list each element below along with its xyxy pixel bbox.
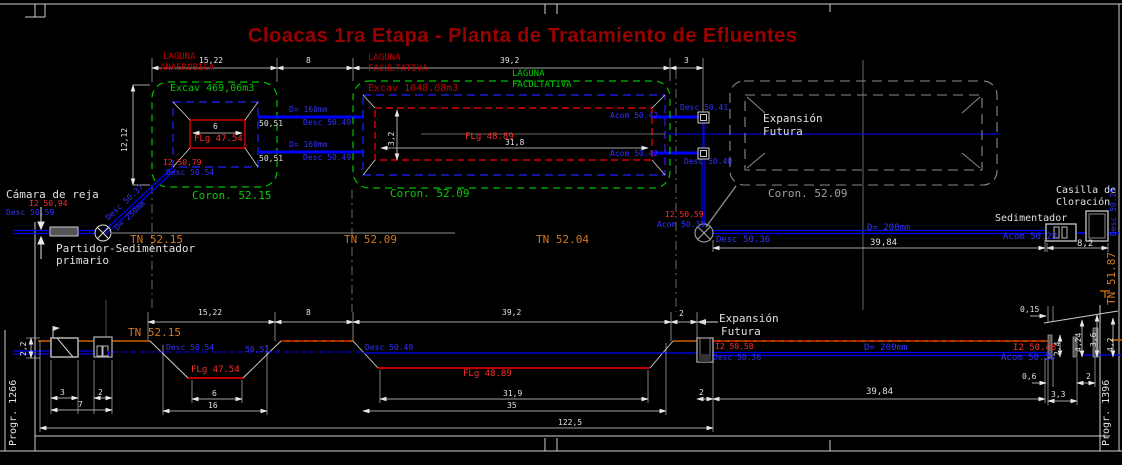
flg-anaerobica: FLg 47.54 (194, 135, 243, 144)
casilla-label-1: Casilla de (1056, 186, 1116, 196)
dim-7-left: 7 (78, 401, 83, 409)
dim-prof-8: 8 (306, 309, 311, 317)
coron-facultativa: Coron. 52.09 (390, 188, 469, 199)
casilla-desc: Desc 50.25 (1110, 188, 1118, 236)
i2-anaerobica: I2 50,79 (163, 159, 202, 167)
i2-5058-profile: I2 50.58 (715, 343, 754, 351)
reja-structure (50, 227, 78, 236)
expansion-profile-1: Expansión (719, 313, 779, 324)
tn-5187: TN 51.87 (1106, 252, 1117, 305)
laguna-facultativa-label-3: LAGUNA (512, 70, 545, 79)
progresiva-1396: Progr. 1396 (1102, 380, 1112, 446)
expansion-label-1: Expansión (763, 113, 823, 124)
laguna-facultativa-label-4: FACULTATIVA (512, 81, 572, 90)
pipe-top-diameter: D= 160mm (289, 106, 328, 114)
dim-plan-6: 6 (213, 123, 218, 131)
dim-2-manhole: 2 (699, 389, 704, 397)
desc-outlet-bottom: Desc 50.40 (684, 158, 732, 166)
acom-facultativa-top: Acom 50.42 (610, 112, 658, 120)
dim-prof-6: 6 (212, 390, 217, 398)
pipe-d200: D= 200mm (867, 224, 910, 233)
tn-5209: TN 52.09 (344, 234, 397, 245)
laguna-facultativa-label-2: FACULTATIVA (368, 65, 428, 74)
drawing-title: Cloacas 1ra Etapa - Planta de Tratamient… (248, 26, 797, 46)
pipe-bottom-desc: Desc 50.49 (303, 154, 351, 162)
dim-plan-1212: 12,12 (121, 128, 129, 152)
pipe-top-desc: Desc 50.49 (303, 119, 351, 127)
casilla-label-2: Cloración (1056, 198, 1110, 208)
excav-anaerobica: Excav 469,06m3 (170, 84, 254, 94)
camara-desc: Desc 50,59 (6, 209, 54, 217)
dim-prof-392: 39,2 (502, 309, 521, 317)
flg-anaerobica-profile: FLg 47.54 (191, 366, 240, 375)
dim-prof-319: 31,9 (503, 390, 522, 398)
profile-dimensions-top (148, 306, 1053, 341)
acom-5028-profile: Acom 50.28 (1001, 354, 1055, 363)
dim-prof-35: 35 (507, 402, 517, 410)
dim-3984-plan: 39,84 (870, 239, 897, 248)
manhole-acom: Acom 50.39 (657, 221, 705, 229)
dim-plan-3: 3 (684, 57, 689, 65)
desc-5049-profile: Desc 50.49 (365, 344, 413, 352)
progresiva-1266: Progr. 1266 (9, 380, 19, 446)
pipe-bottom-level: 50,51 (259, 155, 283, 163)
sedimentador-acom: Acom 50.28 (1003, 233, 1057, 242)
laguna-anaerobica-label-2: ANAEROBICA (160, 64, 214, 73)
tn-5204: TN 52.04 (536, 234, 589, 245)
expansion-label-2: Futura (763, 126, 803, 137)
dim-prof-015: 0,15 (1020, 306, 1039, 314)
acom-facultativa-bottom: Acom 50.42 (610, 150, 658, 158)
pipe-bottom-diameter: D= 160mm (289, 141, 328, 149)
casilla-structure (1086, 211, 1108, 241)
dim-82: 8,2 (1077, 240, 1093, 249)
cad-drawing-canvas[interactable]: Cloacas 1ra Etapa - Planta de Tratamient… (0, 0, 1122, 465)
dim-42-right: 4,2 (1107, 338, 1115, 352)
dim-22-left: 2,2 (20, 342, 28, 356)
level-5051-profile: 50,51 (245, 346, 269, 354)
desc-5036-profile: Desc 50.36 (713, 354, 761, 362)
partidor-label-2: primario (56, 255, 109, 266)
d200-profile: D= 200mm (864, 344, 907, 353)
dim-prof-2: 2 (679, 310, 684, 318)
dim-36-right: 3,6 (1090, 333, 1098, 347)
dim-prof-1225: 122,5 (558, 419, 582, 427)
dim-3984-profile: 39,84 (866, 388, 893, 397)
dim-plan-8: 8 (306, 57, 311, 65)
partidor-label-1: Partidor-Sedimentador (56, 243, 195, 254)
dim-424-right: 4,24 (1075, 333, 1083, 352)
laguna-anaerobica-label-1: LAGUNA (163, 53, 196, 62)
dim-24-right: 2,4 (1054, 342, 1062, 356)
dim-3-left: 3 (60, 389, 65, 397)
desc-anaerobica: Desc 50.54 (166, 169, 214, 177)
dim-06-right: 0,6 (1022, 373, 1036, 381)
tn-5215-profile: TN 52.15 (128, 327, 181, 338)
desc-5054-profile: Desc 50.54 (166, 344, 214, 352)
camara-i2: I2 50,94 (29, 200, 68, 208)
pipe-top-level: 50,51 (259, 120, 283, 128)
desc-outlet-top: Desc 50.41 (680, 104, 728, 112)
dim-plan-1522: 15,22 (199, 57, 223, 65)
profile-lagoon-dimensions (40, 341, 1045, 432)
dim-plan-392: 39,2 (500, 57, 519, 65)
flg-facultativa-profile: FLg 48.89 (463, 370, 512, 379)
profile-left-structures (26, 326, 112, 414)
dim-prof-1522: 15,22 (198, 309, 222, 317)
i2-5048: I2 50.48 (1013, 344, 1056, 353)
partidor-manhole (95, 225, 111, 241)
dim-2-left: 2 (98, 389, 103, 397)
pipe-desc-5036: Desc 50.36 (716, 236, 770, 245)
plan-expansion-futura (706, 81, 997, 227)
dim-33-right: 3,3 (1051, 391, 1065, 399)
dim-prof-16: 16 (208, 402, 218, 410)
manhole-i2: I2 50.59 (665, 211, 704, 219)
laguna-facultativa-label-1: LAGUNA (368, 54, 401, 63)
coron-anaerobica: Coron. 52.15 (192, 190, 271, 201)
dim-plan-32: 3,2 (388, 132, 396, 146)
dim-2-right: 2 (1086, 373, 1091, 381)
expansion-profile-2: Futura (721, 326, 761, 337)
coron-expansion: Coron. 52.09 (768, 188, 847, 199)
dim-plan-318: 31,8 (505, 139, 524, 147)
excav-facultativa: Excav 1048.08m3 (368, 84, 458, 94)
sedimentador-label: Sedimentador (995, 214, 1067, 224)
